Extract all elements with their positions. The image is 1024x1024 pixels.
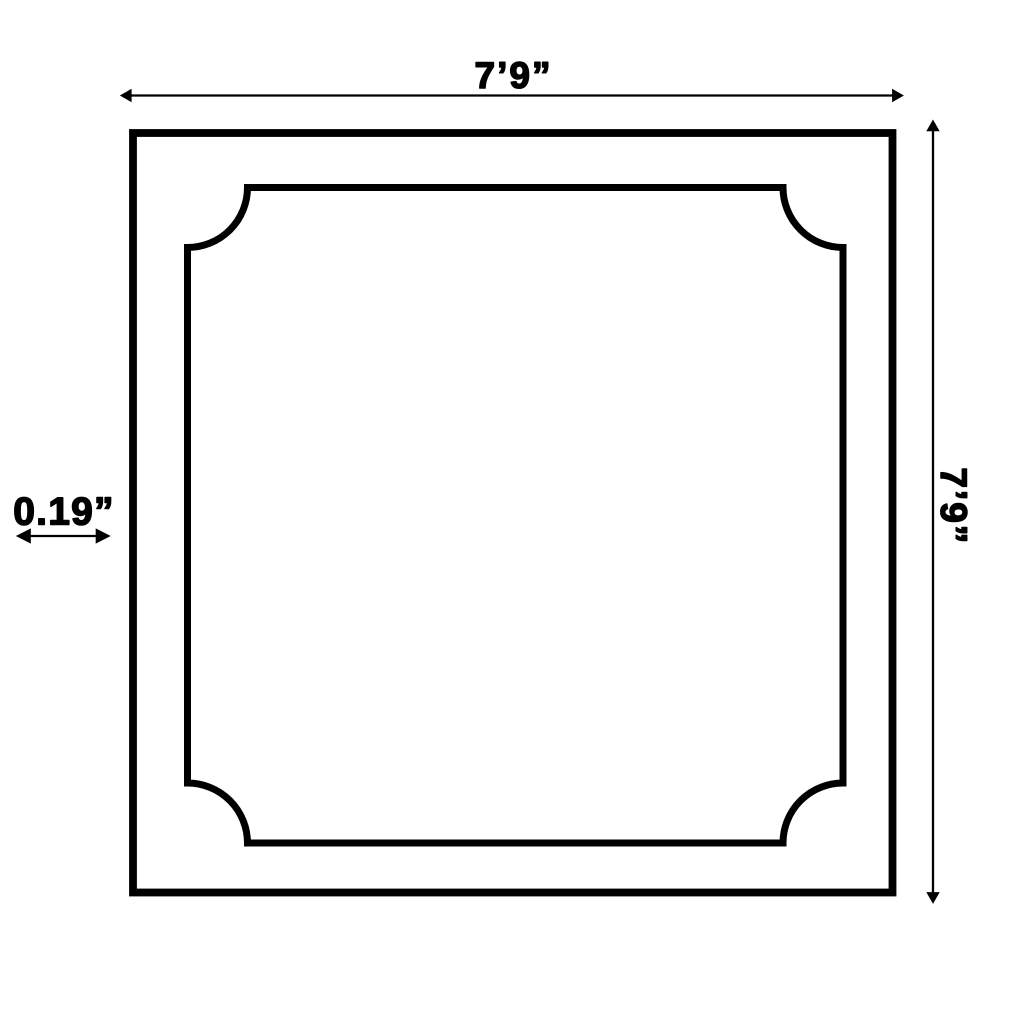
svg-text:0.19”: 0.19” xyxy=(13,491,114,534)
svg-text:7’9”: 7’9” xyxy=(475,55,553,96)
svg-text:7’9”: 7’9” xyxy=(933,467,974,545)
